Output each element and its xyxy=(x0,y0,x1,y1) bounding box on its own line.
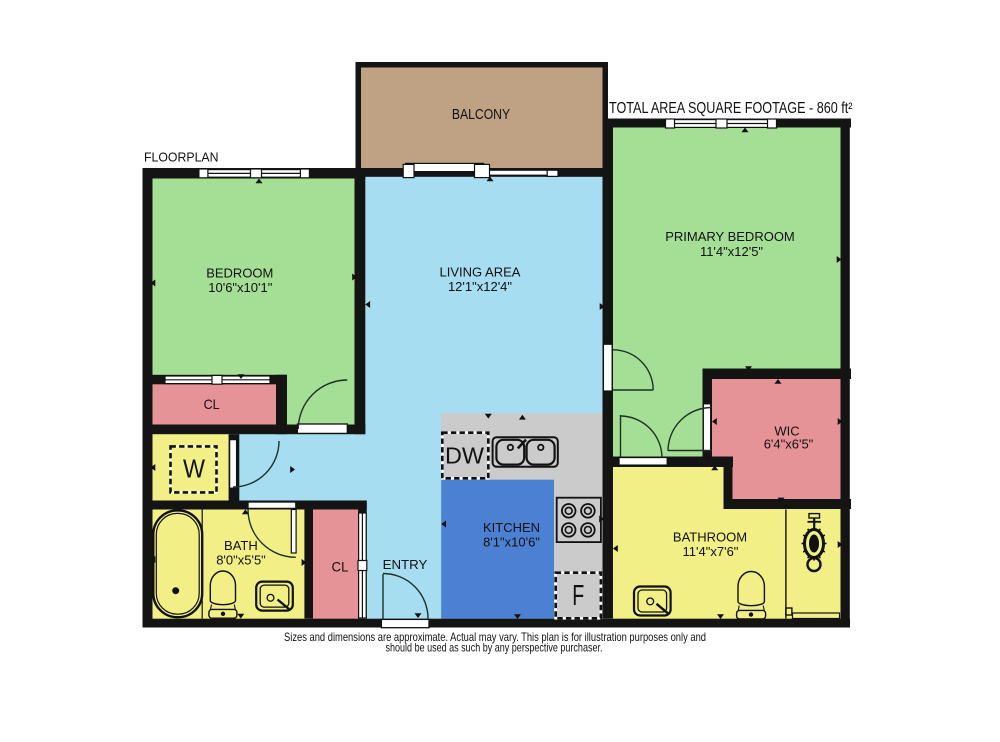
svg-text:8'1"x10'6": 8'1"x10'6" xyxy=(483,534,540,549)
svg-text:BATH: BATH xyxy=(224,538,258,553)
svg-text:10'6"x10'1": 10'6"x10'1" xyxy=(208,280,272,295)
svg-text:12'1"x12'4": 12'1"x12'4" xyxy=(448,279,512,294)
svg-text:CL: CL xyxy=(204,396,220,412)
svg-text:TOTAL AREA SQUARE FOOTAGE - 86: TOTAL AREA SQUARE FOOTAGE - 860 ft² xyxy=(609,100,853,117)
svg-text:8'0"x5'5": 8'0"x5'5" xyxy=(216,552,266,567)
svg-text:BALCONY: BALCONY xyxy=(452,107,511,123)
svg-text:CL: CL xyxy=(332,559,349,575)
svg-text:11'4"x7'6": 11'4"x7'6" xyxy=(683,544,739,559)
svg-text:LIVING AREA: LIVING AREA xyxy=(440,265,521,280)
svg-text:6'4"x6'5": 6'4"x6'5" xyxy=(764,437,814,452)
svg-text:should be used as such by any: should be used as such by any perspectiv… xyxy=(386,641,603,655)
svg-text:BEDROOM: BEDROOM xyxy=(206,265,273,280)
svg-text:F: F xyxy=(572,580,584,612)
svg-text:W: W xyxy=(183,453,205,483)
svg-text:PRIMARY BEDROOM: PRIMARY BEDROOM xyxy=(665,229,795,244)
svg-text:FLOORPLAN: FLOORPLAN xyxy=(144,150,219,164)
svg-text:ENTRY: ENTRY xyxy=(383,557,428,572)
svg-text:DW: DW xyxy=(445,443,485,469)
svg-text:11'4"x12'5": 11'4"x12'5" xyxy=(700,244,763,259)
svg-text:KITCHEN: KITCHEN xyxy=(483,520,540,535)
svg-text:BATHROOM: BATHROOM xyxy=(673,529,747,544)
